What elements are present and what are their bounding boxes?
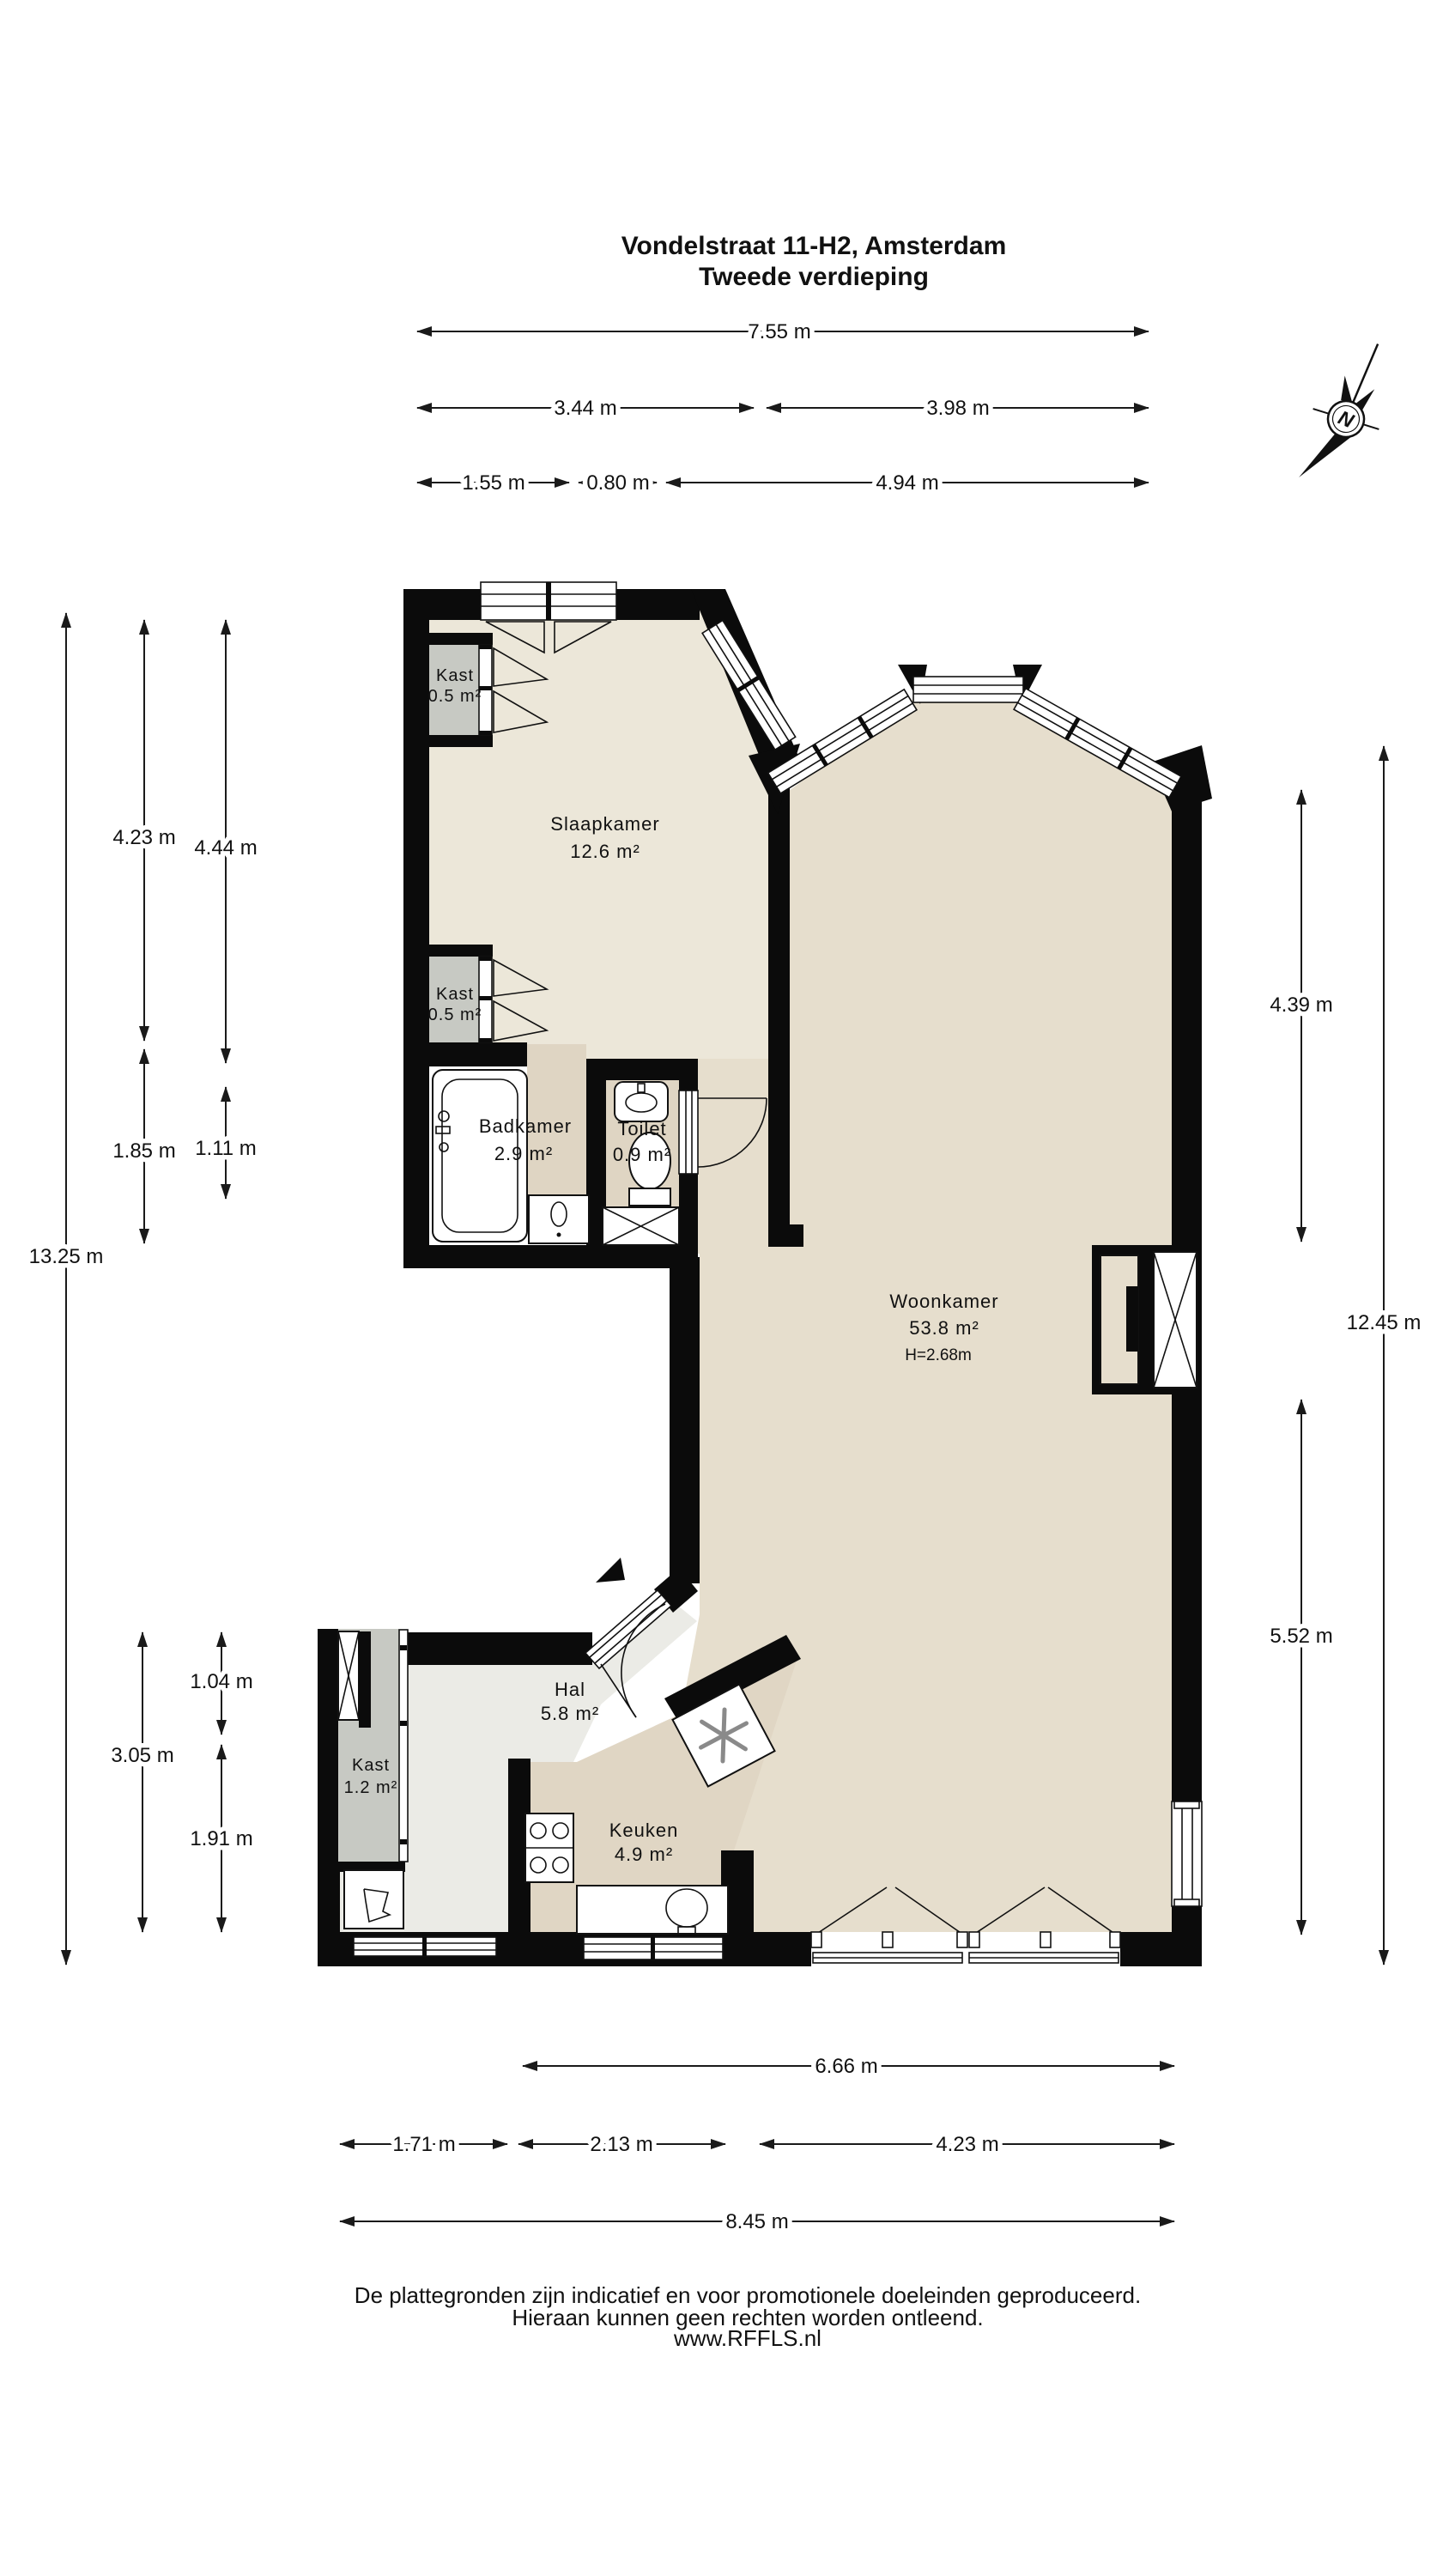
dim-left-444: 4.44 m [194,836,257,860]
dim-top-080: 0.80 m [586,471,649,495]
wall-divider [768,774,790,1247]
wall-block-left [318,1629,340,1966]
dim-bottom-213: 2.13 m [590,2133,652,2156]
label-badkamer-area: 2.9 m² [494,1143,553,1164]
washbasin-badkamer [529,1195,589,1243]
label-woonkamer-area: 53.8 m² [909,1317,979,1339]
dim-left-305: 3.05 m [111,1744,173,1767]
window-bay-center [913,677,1023,702]
wall-divider-foot [790,1224,803,1247]
page-title: Vondelstraat 11-H2, Amsterdam Tweede ver… [621,232,1007,291]
wall-woonkamer-left [670,1257,700,1583]
dim-top-344: 3.44 m [554,397,616,420]
footer-line3: www.RFFLS.nl [673,2325,822,2351]
label-slaapkamer: Slaapkamer [550,813,659,835]
dim-bottom-666: 6.66 m [815,2055,877,2078]
wall-badkamer-top [403,1042,527,1066]
wall-kast1-bottom [403,735,493,747]
wall-right-upper [1172,777,1202,1245]
dim-right-439: 4.39 m [1270,993,1332,1017]
entrance-arrow-icon [596,1558,625,1583]
dim-bottom-423: 4.23 m [936,2133,998,2156]
wall-right-mid [1172,1394,1202,1803]
shaft-toilet [603,1207,679,1245]
wall-toilet-right-upper [679,1059,698,1093]
title-line2: Tweede verdieping [699,263,929,291]
washbasin-toilet [615,1082,668,1121]
label-kast2-area: 0.5 m² [428,1005,482,1024]
floorplan-canvas: Vondelstraat 11-H2, Amsterdam Tweede ver… [0,0,1449,2576]
window-hal-bottom [354,1937,496,1956]
label-toilet: Toilet [617,1118,666,1139]
closet-hal [338,1629,408,1872]
compass-icon: N [1286,331,1410,499]
label-badkamer: Badkamer [479,1115,572,1137]
label-hal-area: 5.8 m² [541,1703,599,1724]
stove [525,1814,573,1882]
wall-toilet-right-lower [679,1171,698,1259]
dim-right-1245: 12.45 m [1347,1311,1422,1334]
label-kast1: Kast [436,666,474,685]
wall-badkamer-bottom [403,1245,698,1268]
label-keuken-area: 4.9 m² [615,1844,673,1865]
washing-machine [344,1870,403,1929]
label-kast1-area: 0.5 m² [428,687,482,706]
dim-bottom-845: 8.45 m [725,2210,788,2233]
label-keuken: Keuken [609,1820,679,1841]
window-right-wall [1172,1801,1202,1906]
dim-left-185: 1.85 m [112,1139,175,1163]
dim-left-111: 1.11 m [195,1137,257,1160]
label-toilet-area: 0.9 m² [613,1144,671,1165]
label-hal: Hal [555,1679,585,1700]
dim-left-191: 1.91 m [190,1827,252,1850]
dim-top-398: 3.98 m [926,397,989,420]
dim-bottom-171: 1.71 m [392,2133,455,2156]
label-kast2: Kast [436,985,474,1004]
title-line1: Vondelstraat 11-H2, Amsterdam [621,232,1007,260]
label-kast3: Kast [352,1756,390,1775]
label-woonkamer: Woonkamer [889,1291,998,1312]
label-woonkamer-height: H=2.68m [905,1346,972,1364]
wall-kast2-top [403,945,493,957]
dim-left-1325: 13.25 m [29,1245,104,1268]
kitchen-counter [577,1886,728,1934]
dim-left-104: 1.04 m [190,1670,252,1693]
window-keuken-bottom [584,1937,723,1959]
label-slaapkamer-area: 12.6 m² [570,841,640,862]
dim-top-155: 1.55 m [462,471,524,495]
footer-disclaimer: De plattegronden zijn indicatief en voor… [355,2282,1141,2351]
wall-kast1-top [403,633,493,645]
wall-left [403,589,429,1268]
dim-top-494: 4.94 m [876,471,938,495]
label-kast3-area: 1.2 m² [344,1778,398,1797]
dim-right-552: 5.52 m [1270,1625,1332,1648]
dim-left-423: 4.23 m [112,826,175,849]
dim-top-755: 7.55 m [748,320,810,343]
